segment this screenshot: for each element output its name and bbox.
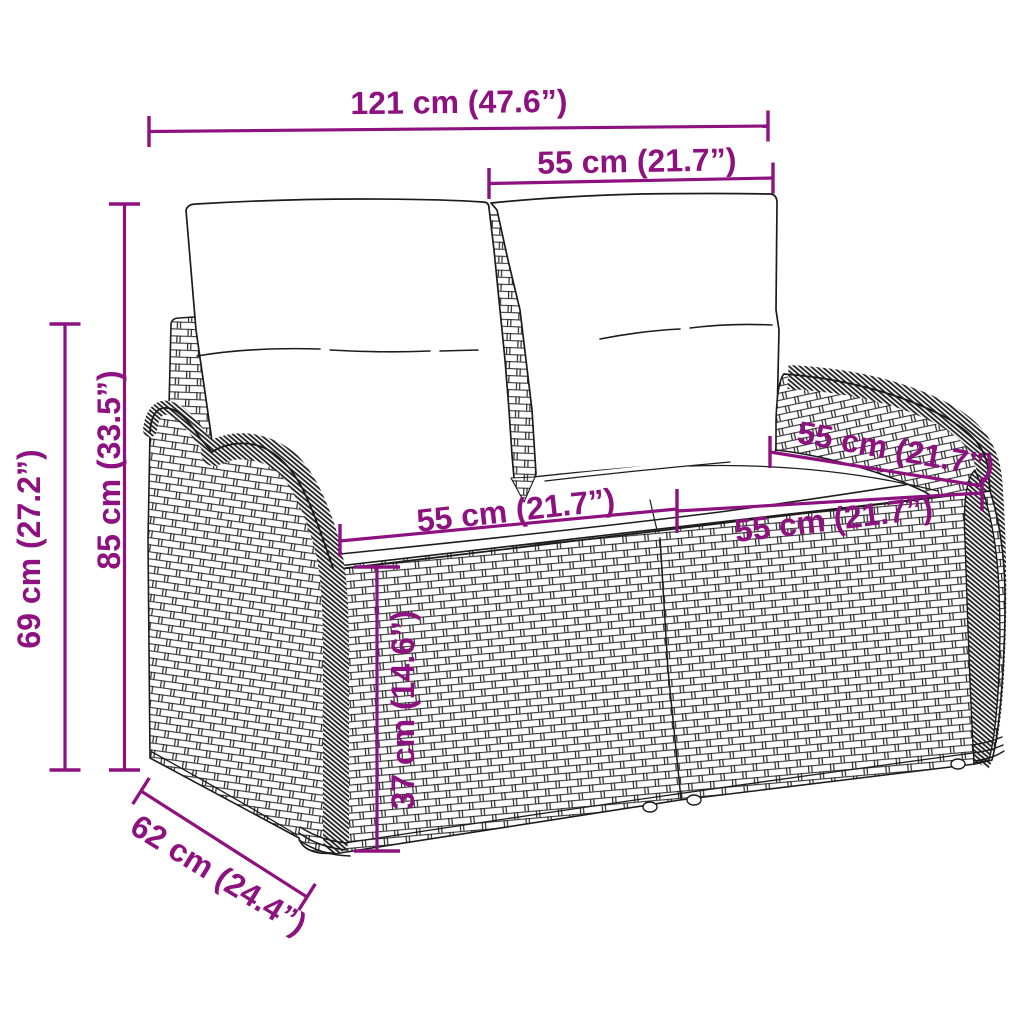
svg-text:37 cm (14.6”): 37 cm (14.6”) [385, 610, 421, 809]
svg-text:85 cm (33.5”): 85 cm (33.5”) [91, 370, 127, 569]
svg-text:121 cm (47.6”): 121 cm (47.6”) [350, 83, 567, 121]
svg-text:55 cm (21.7”): 55 cm (21.7”) [537, 141, 737, 180]
svg-text:69 cm (27.2”): 69 cm (27.2”) [11, 449, 47, 648]
